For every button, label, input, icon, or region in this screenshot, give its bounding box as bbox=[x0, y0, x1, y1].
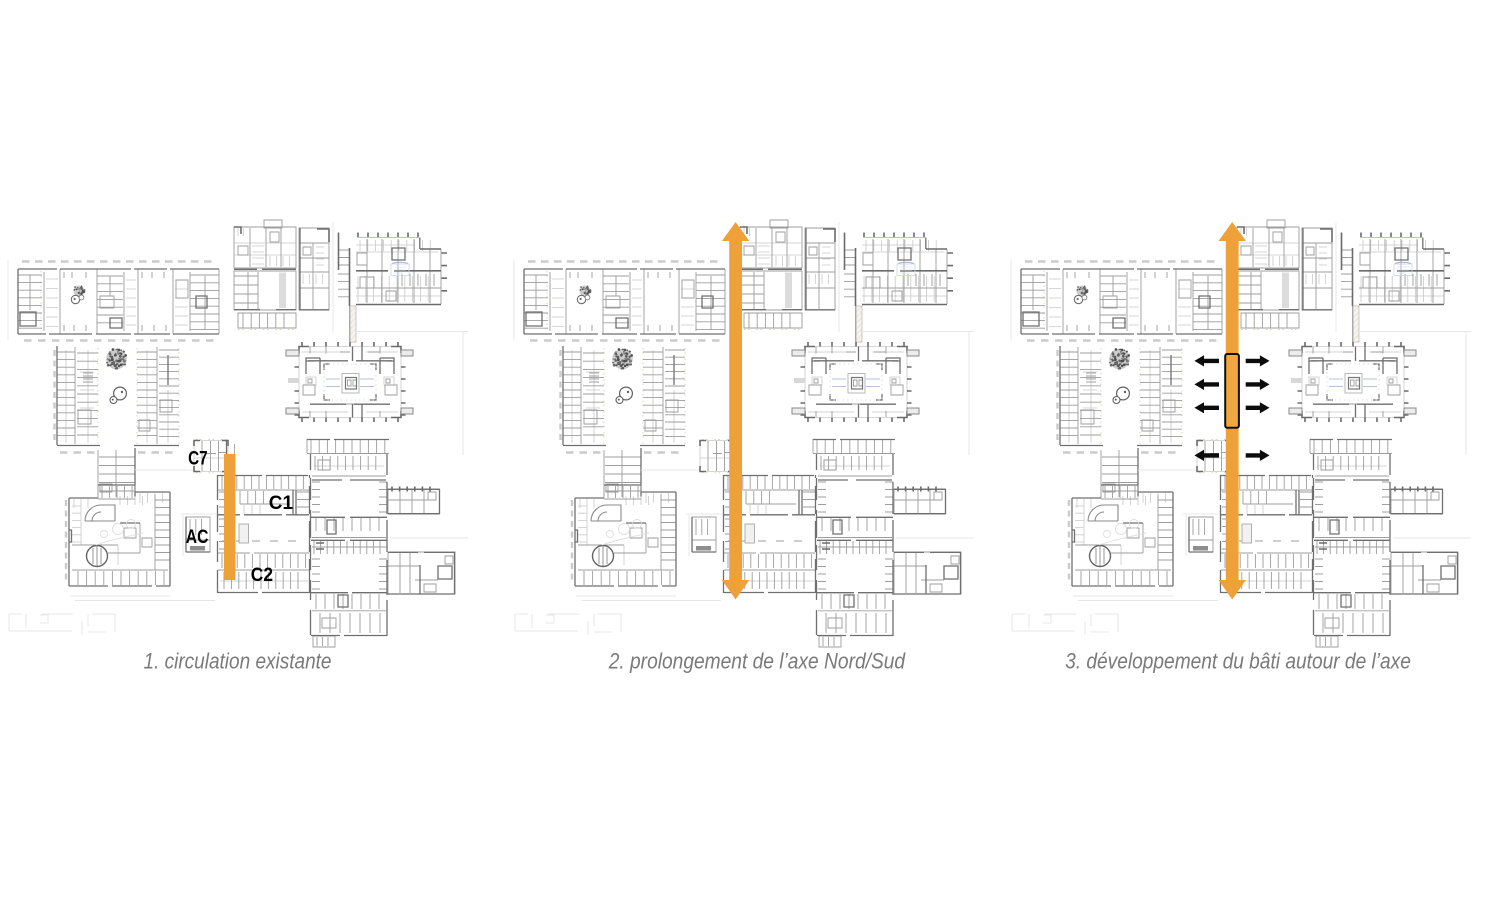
svg-text:C2: C2 bbox=[251, 564, 273, 586]
svg-text:3. développement du bâti autou: 3. développement du bâti autour de l’axe bbox=[1065, 649, 1411, 674]
svg-text:1. circulation existante: 1. circulation existante bbox=[144, 649, 332, 674]
svg-text:C7: C7 bbox=[188, 447, 208, 469]
svg-text:AC: AC bbox=[186, 526, 209, 548]
svg-text:C1: C1 bbox=[269, 492, 293, 514]
svg-text:2. prolongement de l’axe Nord/: 2. prolongement de l’axe Nord/Sud bbox=[608, 649, 906, 674]
